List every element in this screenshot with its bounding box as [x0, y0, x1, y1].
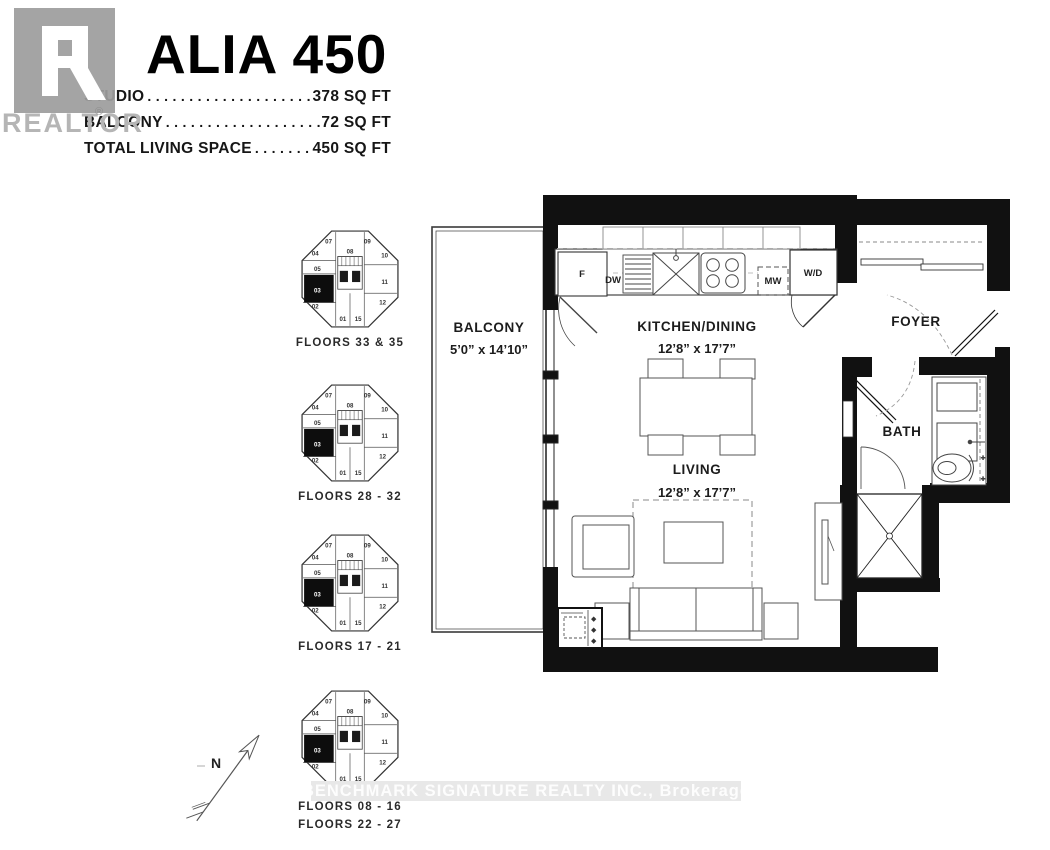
spec-label: TOTAL LIVING SPACE — [84, 140, 252, 158]
armchair — [572, 516, 634, 577]
brokerage-watermark-text: BENCHMARK SIGNATURE REALTY INC., Brokera… — [311, 782, 741, 801]
svg-text:+: + — [981, 476, 985, 483]
keyplan-unit-number: 07 — [325, 392, 332, 399]
spec-leader: . . . . . . . . . . . . . . . . . . . . … — [163, 114, 322, 130]
washer-dryer-label: W/D — [804, 268, 823, 279]
keyplan-floors-08-16-22-27: 070904100508110212011503 — [299, 688, 401, 790]
svg-text:◆: ◆ — [591, 627, 597, 634]
keyplan-label: FLOORS 33 & 35 — [285, 337, 415, 349]
keyplan-unit-number: 02 — [312, 304, 319, 311]
keyplan-unit-number: 15 — [355, 316, 362, 323]
living-dims: 12’8” x 17’7” — [658, 485, 736, 500]
keyplan-floors-17-21: 070904100508110212011503 — [299, 532, 401, 634]
keyplan-unit-number: 07 — [325, 238, 332, 245]
mechanical-unit: ◆ ◆ ◆ — [558, 608, 602, 648]
fridge-label: F — [579, 269, 585, 280]
keyplan-unit-number: 01 — [339, 316, 346, 323]
realtor-logo — [14, 8, 115, 113]
spec-leader: . . . . . . . . . . . . . . . . . . . . … — [144, 88, 312, 104]
keyplan-unit-number: 12 — [379, 760, 386, 767]
keyplan-unit-number: 09 — [364, 698, 371, 705]
keyplan-unit-number: 10 — [381, 253, 388, 260]
keyplan-unit-number: 11 — [381, 433, 388, 440]
keyplan-unit-number: 08 — [347, 403, 354, 410]
keyplan-unit-number: 08 — [347, 249, 354, 256]
keyplan-unit-number: 11 — [381, 279, 388, 286]
coffee-table — [664, 522, 723, 563]
keyplan-unit-number: 11 — [381, 739, 388, 746]
keyplan-unit-number: 02 — [312, 458, 319, 465]
svg-text:+: + — [981, 455, 985, 462]
keyplan-unit-number-highlighted: 03 — [314, 441, 321, 448]
svg-text:◆: ◆ — [591, 616, 597, 623]
keyplan-floors-33-35: 070904100508110212011503 — [299, 228, 401, 330]
registered-mark: ® — [95, 106, 103, 118]
kitchen-sink — [653, 249, 699, 295]
bath-inner-door-swing — [861, 447, 905, 489]
balcony-label: BALCONY — [454, 320, 525, 335]
svg-text:◆: ◆ — [591, 638, 597, 645]
balcony-railing — [432, 227, 546, 632]
dining-table-set — [640, 359, 755, 455]
living-label: LIVING — [673, 462, 722, 477]
keyplan-unit-number: 04 — [312, 711, 319, 718]
shower-closet — [857, 494, 922, 578]
keyplan-unit-number: 04 — [312, 405, 319, 412]
keyplan-unit-number: 04 — [312, 251, 319, 258]
brokerage-watermark: BENCHMARK SIGNATURE REALTY INC., Brokera… — [311, 781, 741, 801]
page-title: ALIA 450 — [146, 22, 387, 86]
keyplan-unit-number: 09 — [364, 238, 371, 245]
keyplan-unit-number: 01 — [339, 470, 346, 477]
kitchen-dining-label: KITCHEN/DINING — [637, 319, 756, 334]
keyplan-unit-number: 09 — [364, 392, 371, 399]
balcony-dims: 5’0” x 14’10” — [450, 342, 528, 357]
north-arrow: N — [175, 722, 275, 842]
unit-floor-plan: + + — [425, 185, 1020, 680]
bath-niche — [843, 401, 853, 437]
keyplan-unit-number: 05 — [314, 420, 321, 427]
keyplan-unit-number: 08 — [347, 709, 354, 716]
keyplan-unit-number: 07 — [325, 698, 332, 705]
keyplan-unit-number: 04 — [312, 555, 319, 562]
keyplan-unit-number: 05 — [314, 266, 321, 273]
keyplan-unit-number: 01 — [339, 620, 346, 627]
sofa — [630, 588, 762, 640]
keyplan-unit-number: 05 — [314, 726, 321, 733]
keyplan-unit-number: 08 — [347, 553, 354, 560]
keyplan-label: FLOORS 28 - 32 — [285, 491, 415, 503]
spec-leader: . . . . . . . . . . . . . . . . — [252, 140, 313, 156]
keyplan-label: FLOORS 22 - 27 — [285, 819, 415, 831]
keyplan-unit-number: 10 — [381, 557, 388, 564]
keyplan-unit-number-highlighted: 03 — [314, 287, 321, 294]
keyplan-unit-number: 12 — [379, 604, 386, 611]
keyplan-unit-number: 07 — [325, 542, 332, 549]
keyplan-unit-number: 10 — [381, 713, 388, 720]
north-label: N — [211, 755, 221, 771]
keyplan-unit-number: 15 — [355, 470, 362, 477]
dishwasher-label: DW — [605, 275, 621, 286]
keyplan-unit-number-highlighted: 03 — [314, 591, 321, 598]
tv-unit — [815, 503, 842, 600]
keyplan-unit-number: 02 — [312, 608, 319, 615]
north-arrow-shaft — [185, 728, 264, 828]
keyplan-unit-number: 12 — [379, 300, 386, 307]
keyplan-unit-number-highlighted: 03 — [314, 747, 321, 754]
kitchen-dining-dims: 12’8” x 17’7” — [658, 341, 736, 356]
foyer-closet — [859, 242, 985, 270]
keyplan-floors-28-32: 070904100508110212011503 — [299, 382, 401, 484]
bath-label: BATH — [883, 424, 922, 439]
spec-value: 378 SQ FT — [312, 88, 391, 106]
keyplan-unit-number: 12 — [379, 454, 386, 461]
keyplan-label: FLOORS 17 - 21 — [285, 641, 415, 653]
keyplan-unit-number: 15 — [355, 620, 362, 627]
keyplan-unit-number: 02 — [312, 764, 319, 771]
microwave-label: MW — [765, 276, 782, 287]
spec-value: 72 SQ FT — [321, 114, 391, 132]
balcony-door — [559, 297, 597, 346]
spec-row-total: TOTAL LIVING SPACE . . . . . . . . . . .… — [84, 140, 391, 166]
washer-dryer-closet — [790, 250, 837, 327]
floorplan-page: REALTOR ® ALIA 450 STUDIO . . . . . . . … — [0, 0, 1050, 850]
keyplan-label: FLOORS 08 - 16 — [285, 801, 415, 813]
keyplan-unit-number: 11 — [381, 583, 388, 590]
stove — [701, 253, 745, 293]
dishwasher — [623, 255, 653, 293]
spec-value: 450 SQ FT — [312, 140, 391, 158]
keyplan-unit-number: 05 — [314, 570, 321, 577]
keyplan-unit-number: 09 — [364, 542, 371, 549]
keyplan-unit-number: 10 — [381, 407, 388, 414]
foyer-label: FOYER — [891, 314, 941, 329]
